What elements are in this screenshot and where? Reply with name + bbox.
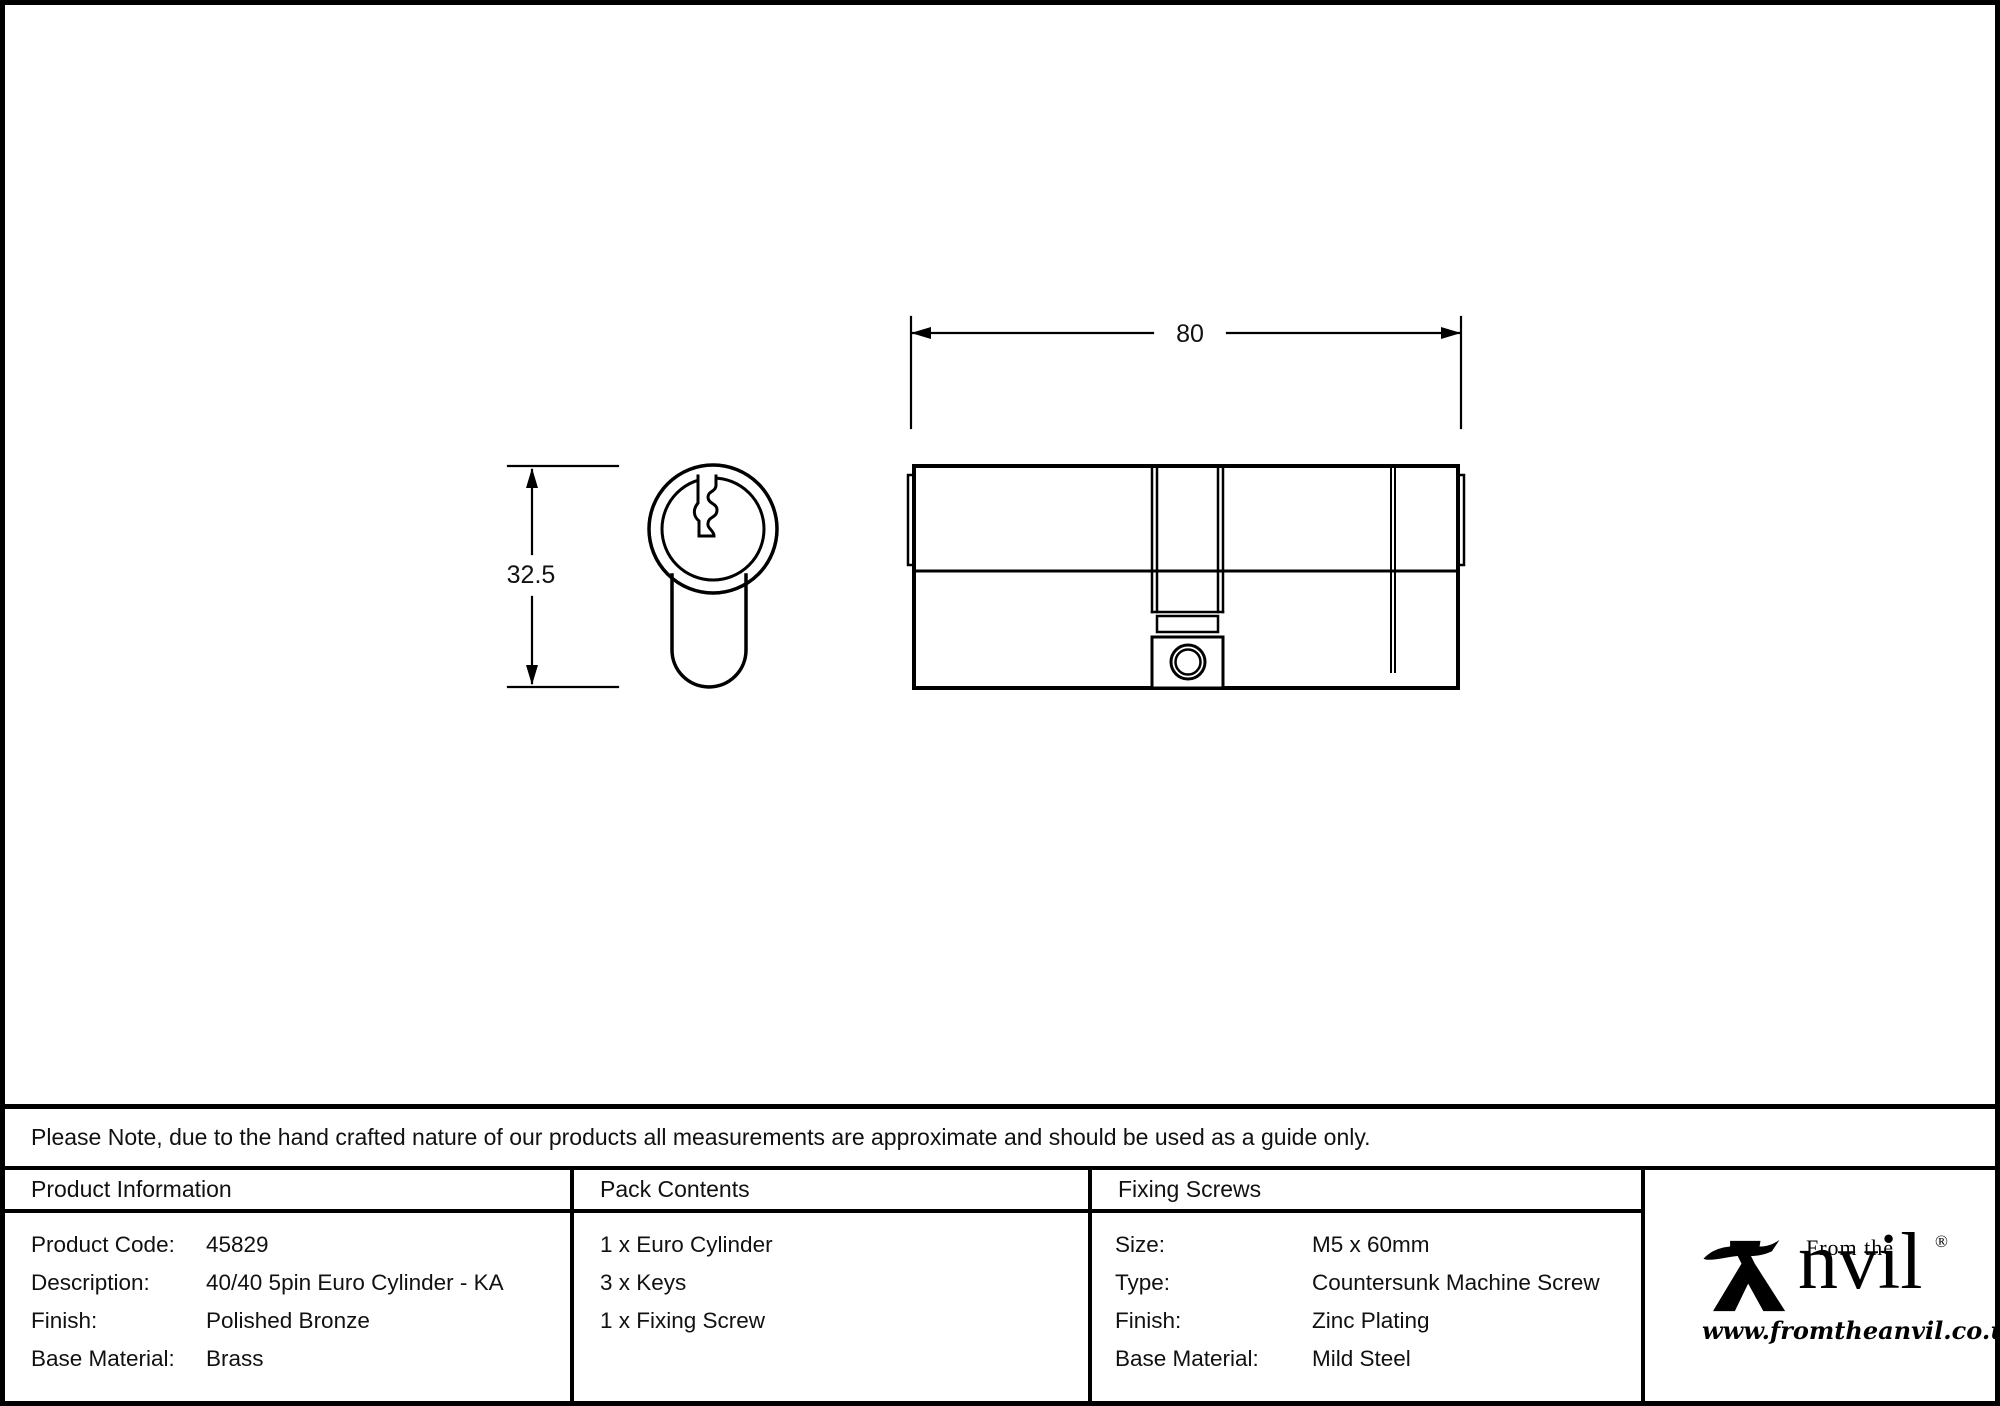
spec-grid: Product Information Product Code: 45829 …	[5, 1170, 1995, 1401]
note-text: Please Note, due to the hand crafted nat…	[31, 1124, 1371, 1151]
row-value: 45829	[206, 1226, 269, 1264]
table-row: Product Code: 45829	[31, 1226, 570, 1264]
spec-sheet: 80 32.5 Please Note, due to the hand cra…	[0, 0, 2000, 1406]
list-item: 3 x Keys	[600, 1264, 1088, 1302]
technical-drawing: 80 32.5	[5, 5, 2000, 1104]
row-label: Description:	[31, 1264, 206, 1302]
row-value: Brass	[206, 1340, 264, 1378]
logo-wordmark: nvil	[1798, 1222, 1922, 1302]
row-value: Polished Bronze	[206, 1302, 370, 1340]
keyway-icon	[694, 476, 717, 536]
row-label: Size:	[1115, 1226, 1312, 1264]
row-label: Finish:	[1115, 1302, 1312, 1340]
brand-logo-cell: From the nvil ® www.fromtheanvil.co.uk	[1645, 1170, 1995, 1401]
table-row: Type: Countersunk Machine Screw	[1115, 1264, 1641, 1302]
cylinder-front-view	[649, 465, 777, 687]
table-row: Description: 40/40 5pin Euro Cylinder - …	[31, 1264, 570, 1302]
list-item: 1 x Euro Cylinder	[600, 1226, 1088, 1264]
fixing-screws-header: Fixing Screws	[1092, 1170, 1641, 1213]
pack-contents-body: 1 x Euro Cylinder 3 x Keys 1 x Fixing Sc…	[574, 1213, 1088, 1340]
table-row: Size: M5 x 60mm	[1115, 1226, 1641, 1264]
registered-mark: ®	[1935, 1232, 1948, 1252]
from-the-anvil-logo: From the nvil ® www.fromtheanvil.co.uk	[1702, 1236, 1952, 1348]
list-item: 1 x Fixing Screw	[600, 1302, 1088, 1340]
row-value: Zinc Plating	[1312, 1302, 1430, 1340]
cam-plate	[1157, 616, 1218, 632]
row-label: Base Material:	[1115, 1340, 1312, 1378]
product-info-body: Product Code: 45829 Description: 40/40 5…	[5, 1213, 570, 1378]
product-info-header: Product Information	[5, 1170, 570, 1213]
note-row: Please Note, due to the hand crafted nat…	[5, 1109, 1995, 1170]
pack-contents-column: Pack Contents 1 x Euro Cylinder 3 x Keys…	[574, 1170, 1092, 1401]
cylinder-side-view	[908, 466, 1464, 688]
table-row: Finish: Polished Bronze	[31, 1302, 570, 1340]
front-inner-circle	[662, 478, 764, 580]
dim-height-label: 32.5	[507, 561, 556, 589]
fixing-screws-body: Size: M5 x 60mm Type: Countersunk Machin…	[1092, 1213, 1641, 1378]
fixing-screws-column: Fixing Screws Size: M5 x 60mm Type: Coun…	[1092, 1170, 1645, 1401]
dim-width-label: 80	[1176, 320, 1204, 348]
row-label: Type:	[1115, 1264, 1312, 1302]
row-label: Product Code:	[31, 1226, 206, 1264]
table-row: Finish: Zinc Plating	[1115, 1302, 1641, 1340]
row-value: Countersunk Machine Screw	[1312, 1264, 1600, 1302]
row-label: Finish:	[31, 1302, 206, 1340]
table-row: Base Material: Brass	[31, 1340, 570, 1378]
pack-contents-header: Pack Contents	[574, 1170, 1088, 1213]
product-info-column: Product Information Product Code: 45829 …	[5, 1170, 574, 1401]
row-value: Mild Steel	[1312, 1340, 1411, 1378]
row-value: M5 x 60mm	[1312, 1226, 1430, 1264]
spec-table: Please Note, due to the hand crafted nat…	[5, 1104, 1995, 1401]
table-row: Base Material: Mild Steel	[1115, 1340, 1641, 1378]
logo-url: www.fromtheanvil.co.uk	[1702, 1316, 1952, 1345]
anvil-icon	[1702, 1238, 1800, 1314]
row-label: Base Material:	[31, 1340, 206, 1378]
row-value: 40/40 5pin Euro Cylinder - KA	[206, 1264, 504, 1302]
